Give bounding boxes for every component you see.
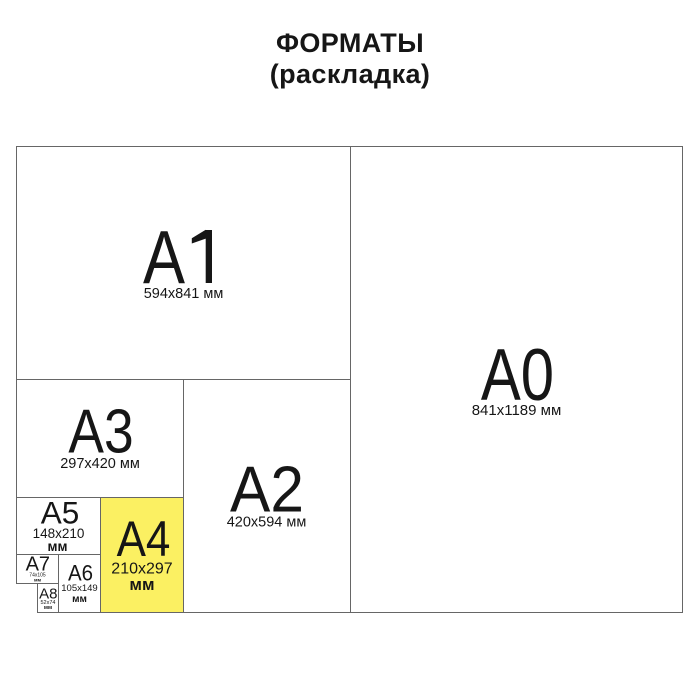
svg-text:594x841 мм: 594x841 мм (144, 286, 224, 302)
svg-text:105x149: 105x149 (61, 583, 97, 594)
svg-text:мм: мм (44, 605, 52, 611)
svg-text:74x105: 74x105 (29, 572, 46, 578)
svg-text:841x1189 мм: 841x1189 мм (472, 402, 562, 419)
svg-text:297x420 мм: 297x420 мм (60, 456, 140, 472)
svg-text:мм: мм (48, 539, 68, 554)
svg-text:мм: мм (72, 594, 87, 605)
svg-text:мм: мм (34, 579, 42, 584)
svg-text:420x594 мм: 420x594 мм (227, 515, 307, 531)
svg-text:мм: мм (129, 575, 154, 594)
svg-text:A4: A4 (117, 510, 171, 566)
svg-text:A6: A6 (68, 561, 93, 586)
